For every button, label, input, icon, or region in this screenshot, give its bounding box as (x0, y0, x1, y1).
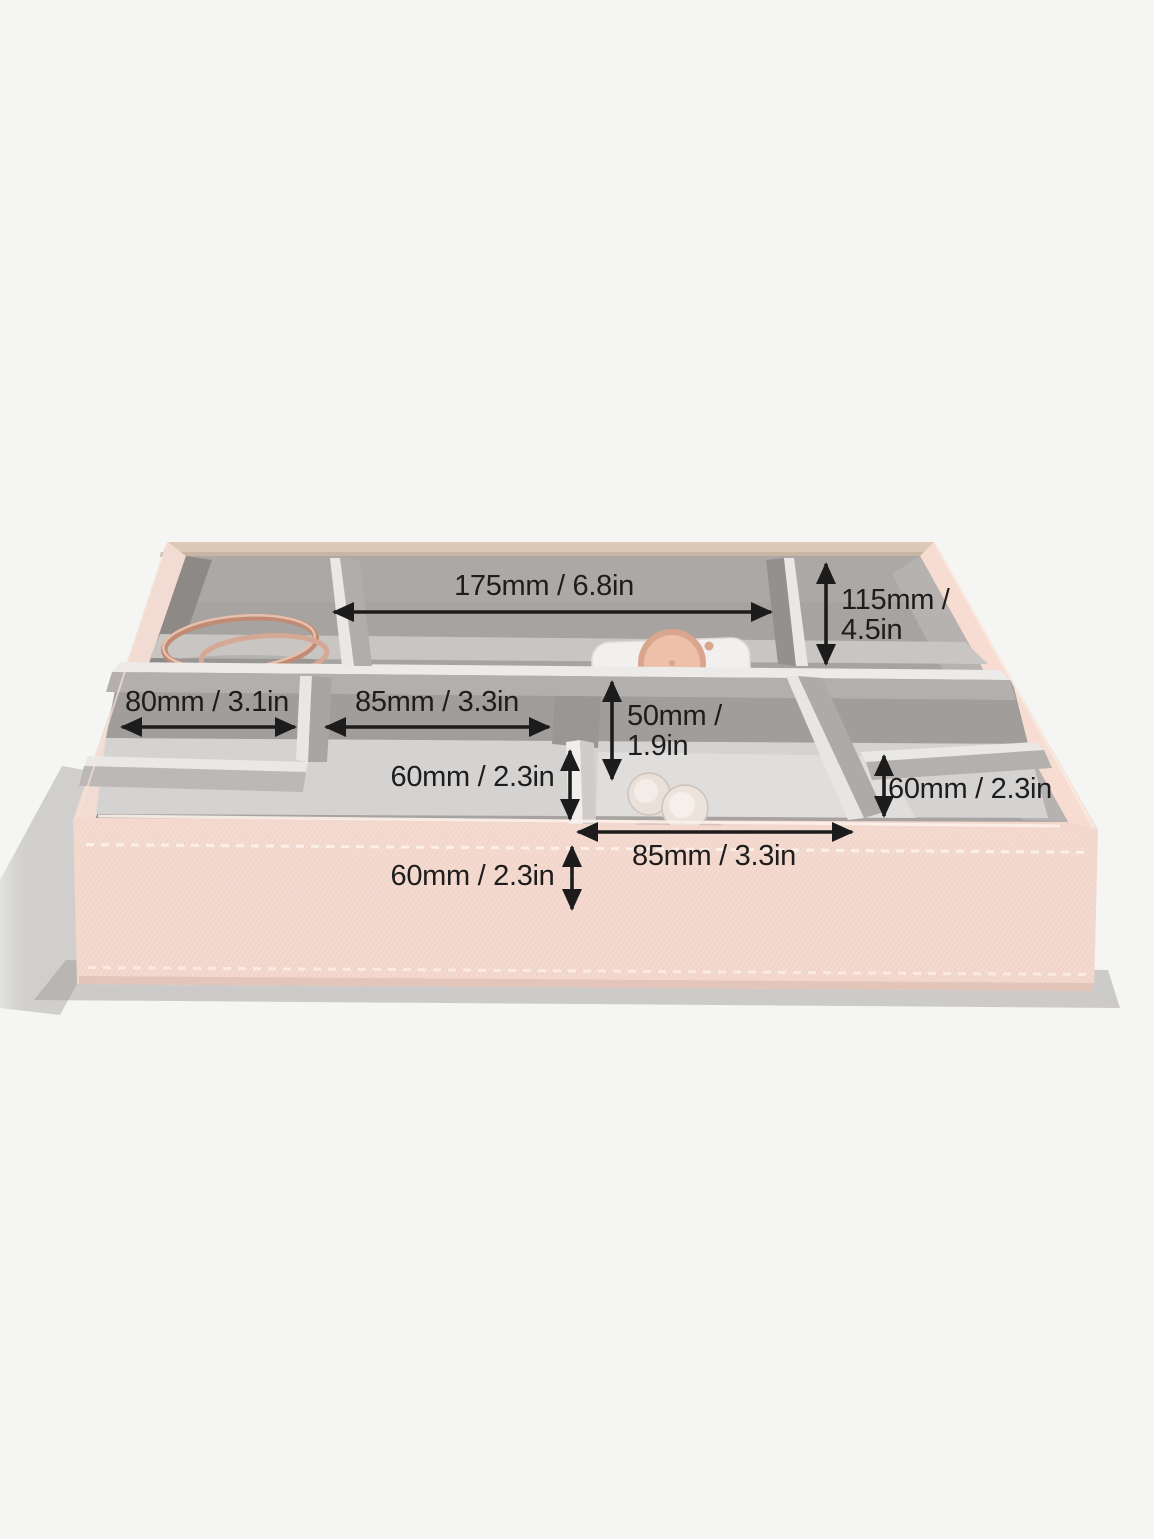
front-rim-highlight (98, 816, 1060, 826)
dimension-label-front-section-width: 85mm / 3.3in (604, 841, 824, 871)
product-photo: 175mm / 6.8in 115mm / 4.5in 80mm / 3.1in… (0, 0, 1154, 1539)
dimension-label-mid-divider-height: 60mm / 2.3in (380, 762, 565, 792)
dimension-label-left-section-width: 80mm / 3.1in (107, 687, 307, 717)
dimension-label-tray-front-height: 60mm / 2.3in (380, 861, 565, 891)
dimension-label-right-inner-depth: 115mm / 4.5in (841, 585, 991, 645)
dimension-label-mid-section-width: 85mm / 3.3in (337, 687, 537, 717)
dimension-label-back-inner-width: 175mm / 6.8in (394, 571, 694, 601)
dimension-label-right-section-depth: 60mm / 2.3in (870, 774, 1070, 804)
left-rim-highlight (78, 545, 166, 816)
dimension-label-mid-section-depth: 50mm / 1.9in (627, 701, 735, 761)
dimension-overlay (0, 0, 1154, 1539)
